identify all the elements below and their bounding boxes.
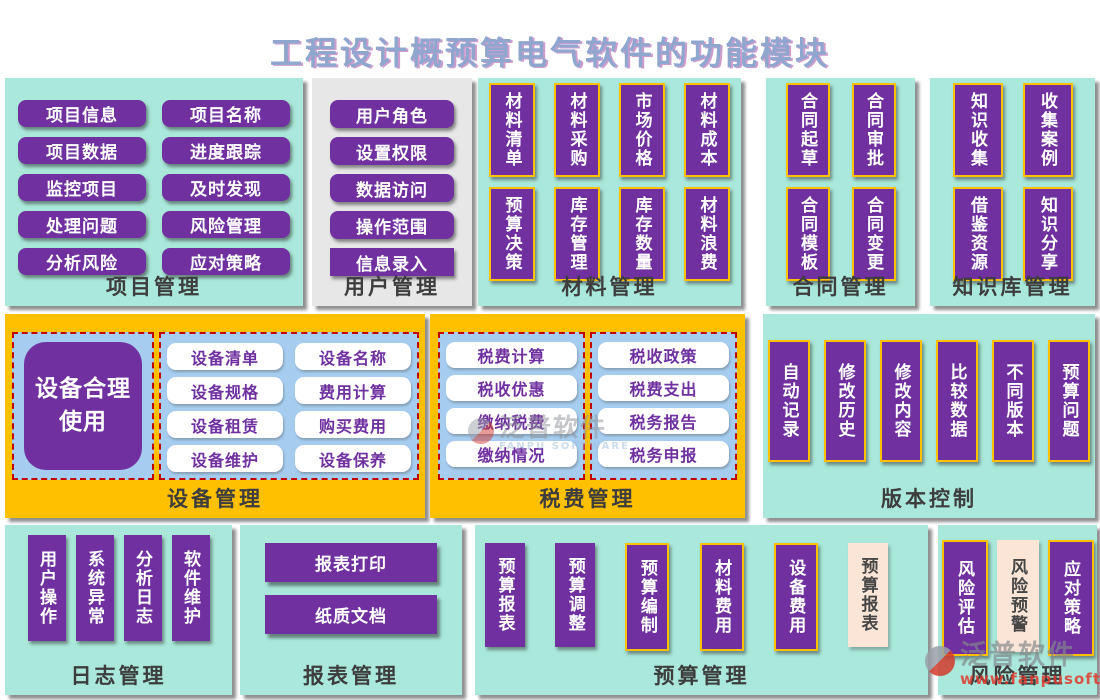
knowledge-row-2: 借鉴资源 知识分享 — [930, 187, 1095, 281]
contract-row-1: 合同起草 合同审批 — [766, 83, 915, 177]
module-button[interactable]: 风险预警 — [997, 540, 1039, 652]
equipment-button-container: 设备清单 设备名称 设备规格 费用计算 设备租赁 购买费用 设备维护 设备保养 — [159, 332, 419, 480]
report-button-stack: 报表打印 纸质文档 — [240, 525, 462, 634]
module-button[interactable]: 税务报告 — [598, 408, 729, 434]
module-button[interactable]: 预算调整 — [555, 543, 595, 647]
panel-report-management: 报表打印 纸质文档 报表管理 — [240, 525, 462, 695]
module-button[interactable]: 操作范围 — [330, 211, 454, 239]
module-button[interactable]: 预算报表 — [848, 543, 888, 647]
budget-button-row: 预算报表 预算调整 预算编制 材料费用 设备费用 预算报表 — [475, 525, 928, 651]
module-button[interactable]: 材料清单 — [489, 83, 535, 177]
module-button[interactable]: 风险评估 — [942, 540, 988, 656]
module-button[interactable]: 税费支出 — [598, 375, 729, 401]
material-row-2: 预算决策 库存管理 库存数量 材料浪费 — [478, 187, 741, 281]
module-button[interactable]: 材料成本 — [684, 83, 730, 177]
panel-title: 报表管理 — [240, 660, 462, 690]
module-button[interactable]: 软件维护 — [172, 535, 210, 641]
module-button[interactable]: 及时发现 — [162, 174, 290, 201]
tax-left-stack: 税费计算 税收优惠 缴纳税费 缴纳情况 — [440, 334, 583, 467]
equipment-button-grid: 设备清单 设备名称 设备规格 费用计算 设备租赁 购买费用 设备维护 设备保养 — [161, 334, 417, 472]
panel-title: 预算管理 — [475, 660, 928, 690]
module-button[interactable]: 设备保养 — [295, 445, 411, 472]
module-button[interactable]: 项目数据 — [18, 137, 146, 164]
panel-version-control: 自动记录 修改历史 修改内容 比较数据 不同版本 预算问题 版本控制 — [763, 314, 1095, 518]
panel-risk-management: 风险评估 风险预警 应对策略 风险管理 — [938, 525, 1097, 695]
module-button[interactable]: 缴纳税费 — [446, 408, 577, 434]
panel-material-management: 材料清单 材料采购 市场价格 材料成本 预算决策 库存管理 库存数量 材料浪费 … — [478, 78, 741, 306]
module-button[interactable]: 收集案例 — [1023, 83, 1073, 177]
module-button[interactable]: 合同变更 — [852, 187, 896, 281]
module-button[interactable]: 项目名称 — [162, 100, 290, 127]
panel-equipment-management: 设备合理使用 设备清单 设备名称 设备规格 费用计算 设备租赁 购买费用 设备维… — [5, 314, 425, 518]
panel-title: 版本控制 — [763, 483, 1095, 513]
module-button[interactable]: 应对策略 — [1048, 540, 1094, 656]
panel-budget-management: 预算报表 预算调整 预算编制 材料费用 设备费用 预算报表 预算管理 — [475, 525, 928, 695]
module-button[interactable]: 比较数据 — [936, 340, 978, 462]
module-button[interactable]: 风险管理 — [162, 211, 290, 238]
module-button[interactable]: 监控项目 — [18, 174, 146, 201]
module-button[interactable]: 税收优惠 — [446, 375, 577, 401]
project-button-grid: 项目信息 项目名称 项目数据 进度跟踪 监控项目 及时发现 处理问题 风险管理 … — [5, 78, 303, 275]
panel-log-management: 用户操作 系统异常 分析日志 软件维护 日志管理 — [5, 525, 232, 695]
module-button[interactable]: 设备清单 — [167, 343, 283, 370]
panel-contract-management: 合同起草 合同审批 合同模板 合同变更 合同管理 — [766, 78, 915, 306]
page-title: 工程设计概预算电气软件的功能模块 — [0, 28, 1100, 74]
module-button[interactable]: 材料浪费 — [684, 187, 730, 281]
material-row-1: 材料清单 材料采购 市场价格 材料成本 — [478, 83, 741, 177]
module-button[interactable]: 知识分享 — [1023, 187, 1073, 281]
module-button[interactable]: 材料费用 — [700, 543, 744, 651]
module-button[interactable]: 报表打印 — [265, 543, 437, 582]
risk-button-row: 风险评估 风险预警 应对策略 — [938, 540, 1097, 656]
module-button[interactable]: 数据访问 — [330, 174, 454, 202]
module-button[interactable]: 设备规格 — [167, 377, 283, 404]
module-button[interactable]: 用户操作 — [28, 535, 66, 641]
module-button[interactable]: 材料采购 — [554, 83, 600, 177]
module-button[interactable]: 购买费用 — [295, 411, 411, 438]
module-button[interactable]: 设备合理使用 — [24, 342, 142, 470]
tax-right-stack: 税收政策 税费支出 税务报告 税务申报 — [592, 334, 735, 467]
module-button[interactable]: 设备费用 — [774, 543, 818, 651]
version-button-row: 自动记录 修改历史 修改内容 比较数据 不同版本 预算问题 — [763, 340, 1095, 462]
panel-user-management: 用户角色 设置权限 数据访问 操作范围 信息录入 用户管理 — [312, 78, 472, 306]
knowledge-row-1: 知识收集 收集案例 — [930, 83, 1095, 177]
panel-title: 合同管理 — [766, 271, 915, 301]
module-button[interactable]: 系统异常 — [76, 535, 114, 641]
panel-title: 日志管理 — [5, 660, 232, 690]
module-button[interactable]: 设备租赁 — [167, 411, 283, 438]
panel-title: 用户管理 — [312, 271, 472, 301]
module-button[interactable]: 合同审批 — [852, 83, 896, 177]
panel-title: 税费管理 — [430, 483, 745, 513]
log-button-row: 用户操作 系统异常 分析日志 软件维护 — [5, 535, 232, 641]
equipment-feature-container: 设备合理使用 — [12, 332, 154, 480]
panel-project-management: 项目信息 项目名称 项目数据 进度跟踪 监控项目 及时发现 处理问题 风险管理 … — [5, 78, 303, 306]
module-button[interactable]: 库存数量 — [619, 187, 665, 281]
module-button[interactable]: 自动记录 — [768, 340, 810, 462]
tax-right-container: 税收政策 税费支出 税务报告 税务申报 — [590, 332, 737, 480]
panel-title: 知识库管理 — [930, 271, 1095, 301]
module-button[interactable]: 修改内容 — [880, 340, 922, 462]
module-button[interactable]: 市场价格 — [619, 83, 665, 177]
module-button[interactable]: 预算编制 — [625, 543, 669, 651]
module-button[interactable]: 设置权限 — [330, 137, 454, 165]
module-button[interactable]: 借鉴资源 — [953, 187, 1003, 281]
module-button[interactable]: 预算决策 — [489, 187, 535, 281]
module-button[interactable]: 合同起草 — [786, 83, 830, 177]
module-button[interactable]: 设备维护 — [167, 445, 283, 472]
module-button[interactable]: 税费计算 — [446, 342, 577, 368]
module-button[interactable]: 税收政策 — [598, 342, 729, 368]
module-button[interactable]: 合同模板 — [786, 187, 830, 281]
module-button[interactable]: 项目信息 — [18, 100, 146, 127]
module-button[interactable]: 预算报表 — [485, 543, 525, 647]
panel-knowledge-base-management: 知识收集 收集案例 借鉴资源 知识分享 知识库管理 — [930, 78, 1095, 306]
module-button[interactable]: 费用计算 — [295, 377, 411, 404]
panel-title: 风险管理 — [938, 660, 1097, 690]
module-button[interactable]: 缴纳情况 — [446, 441, 577, 467]
user-button-stack: 用户角色 设置权限 数据访问 操作范围 信息录入 — [312, 78, 472, 276]
diagram-page: 工程设计概预算电气软件的功能模块 项目信息 项目名称 项目数据 进度跟踪 监控项… — [0, 0, 1100, 700]
panel-title: 项目管理 — [5, 271, 303, 301]
module-button[interactable]: 不同版本 — [992, 340, 1034, 462]
module-button[interactable]: 设备名称 — [295, 343, 411, 370]
module-button[interactable]: 处理问题 — [18, 211, 146, 238]
panel-title: 设备管理 — [5, 483, 425, 513]
module-button[interactable]: 预算问题 — [1048, 340, 1090, 462]
module-button[interactable]: 库存管理 — [554, 187, 600, 281]
panel-tax-management: 税费计算 税收优惠 缴纳税费 缴纳情况 税收政策 税费支出 税务报告 税务申报 … — [430, 314, 745, 518]
module-button[interactable]: 用户角色 — [330, 100, 454, 128]
tax-left-container: 税费计算 税收优惠 缴纳税费 缴纳情况 — [438, 332, 585, 480]
contract-row-2: 合同模板 合同变更 — [766, 187, 915, 281]
module-button[interactable]: 修改历史 — [824, 340, 866, 462]
module-button[interactable]: 进度跟踪 — [162, 137, 290, 164]
module-button[interactable]: 纸质文档 — [265, 595, 437, 634]
module-button[interactable]: 分析日志 — [124, 535, 162, 641]
module-button[interactable]: 知识收集 — [953, 83, 1003, 177]
module-button[interactable]: 税务申报 — [598, 441, 729, 467]
panel-title: 材料管理 — [478, 271, 741, 301]
